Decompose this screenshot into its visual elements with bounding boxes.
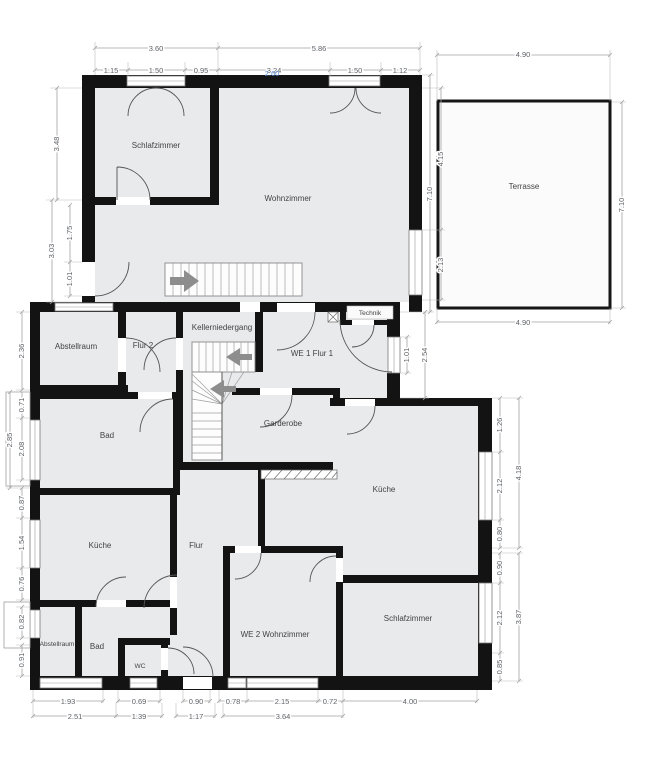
dim-terrasse-top: 4.90 <box>516 50 531 59</box>
dim-left-schlaf: 3.48 <box>52 137 61 152</box>
dim-left-bad-b: 2.08 <box>17 442 26 457</box>
dim-schlaf-total: 3.60 <box>149 44 164 53</box>
floor-plan-drawing: 3.60 1.15 1.50 0.95 5.86 3.24 1.50 1.12 … <box>0 0 648 782</box>
dim-left-e: 0.82 <box>17 615 26 630</box>
room-label-terrasse: Terrasse <box>509 182 540 191</box>
dim-right-kueche-total: 4.18 <box>514 466 523 481</box>
room-label-kueche-we1: Küche <box>373 485 396 494</box>
dimensions-right-mid: 1.01 2.54 <box>402 310 429 400</box>
dim-bottom-r2-c: 1.17 <box>189 712 204 721</box>
dim-left-bad-total: 2.85 <box>5 433 14 448</box>
dim-wohn-total: 5.86 <box>312 44 327 53</box>
dim-right-schlaf-c: 0.85 <box>495 660 504 675</box>
dim-right-mid-total: 2.54 <box>420 348 429 363</box>
dimensions-right-lower: 1.26 2.12 0.80 4.18 0.90 2.12 0.85 3.87 <box>495 396 523 683</box>
dim-left-total-a: 3.03 <box>47 244 56 259</box>
terrace <box>438 101 610 308</box>
room-label-we2-wohnzimmer: WE 2 Wohnzimmer <box>241 630 310 639</box>
dim-bottom-r1-f: 0.72 <box>323 697 338 706</box>
dim-bottom-r1-c: 0.90 <box>189 697 204 706</box>
room-label-kueche-we2: Küche <box>89 541 112 550</box>
room-label-abstellraum-we2: Abstellraum <box>40 641 75 648</box>
dim-terrasse-bottom: 4.90 <box>516 318 531 327</box>
dim-left-kueche-win: 1.54 <box>17 536 26 551</box>
dim-right-schlaf-a: 0.90 <box>495 561 504 576</box>
dim-right-upper-a: 4.15 <box>436 152 445 167</box>
dim-bottom-r1-d: 0.78 <box>226 697 241 706</box>
dim-right-schlaf-b: 2.12 <box>495 611 504 626</box>
dim-schlaf-a: 1.15 <box>104 66 119 75</box>
dim-left-f: 0.91 <box>17 653 26 668</box>
dimensions-bottom: 1.93 0.69 0.90 0.78 2.15 0.72 4.00 2.51 … <box>31 697 479 721</box>
dim-terrasse-left: 7.10 <box>425 187 434 202</box>
window-kueche-we1 <box>479 452 492 520</box>
dim-wohn-b: 1.50 <box>348 66 363 75</box>
dim-right-upper-b: 2.13 <box>436 258 445 273</box>
dim-right-schlaf-total: 3.87 <box>514 610 523 625</box>
room-label-bad-we1: Bad <box>100 431 114 440</box>
dim-right-kueche-c: 0.80 <box>495 527 504 542</box>
room-label-flur2: Flur 2 <box>133 341 154 350</box>
room-label-garderobe: Garderobe <box>264 419 303 428</box>
dim-bottom-r1-g: 4.00 <box>403 697 418 706</box>
window-schlafzimmer-we2 <box>479 583 492 643</box>
selected-dimension[interactable]: 2.60 <box>265 69 280 78</box>
dimensions-top: 3.60 1.15 1.50 0.95 5.86 3.24 1.50 1.12 … <box>93 44 422 78</box>
room-label-wohnzimmer: Wohnzimmer <box>265 194 312 203</box>
dim-left-abstell: 2.36 <box>17 344 26 359</box>
floor-plan-canvas: 3.60 1.15 1.50 0.95 5.86 3.24 1.50 1.12 … <box>0 0 648 782</box>
room-label-schlafzimmer-og: Schlafzimmer <box>132 141 181 150</box>
room-label-we1-flur1: WE 1 Flur 1 <box>291 349 334 358</box>
dim-left-c: 0.87 <box>17 496 26 511</box>
dim-schlaf-b: 1.50 <box>149 66 164 75</box>
dim-schlaf-c: 0.95 <box>194 66 209 75</box>
dim-right-mid-window: 1.01 <box>402 348 411 363</box>
dim-bottom-r1-a: 1.93 <box>61 697 76 706</box>
room-label-schlafzimmer-we2: Schlafzimmer <box>384 614 433 623</box>
dim-left-bad-a: 0.71 <box>17 398 26 413</box>
dim-bottom-r1-e: 2.15 <box>275 697 290 706</box>
room-label-flur: Flur <box>189 541 203 550</box>
room-label-bad-we2: Bad <box>90 642 104 651</box>
dim-left-d: 0.76 <box>17 577 26 592</box>
dim-bottom-r1-b: 0.69 <box>132 697 147 706</box>
dim-left-a: 1.75 <box>65 226 74 241</box>
window-wohnzimmer-right <box>409 230 422 295</box>
dim-bottom-r2-a: 2.51 <box>68 712 83 721</box>
room-label-technik: Technik <box>359 310 382 317</box>
stair-upper-floor <box>165 263 302 296</box>
dim-wohn-c: 1.12 <box>393 66 408 75</box>
dim-right-kueche-b: 2.12 <box>495 479 504 494</box>
room-label-abstellraum-we1: Abstellraum <box>55 342 98 351</box>
room-label-kellerniedergang: Kellerniedergang <box>192 323 253 332</box>
dim-right-kueche-a: 1.26 <box>495 418 504 433</box>
terrace-outline <box>438 101 610 308</box>
dim-left-b: 1.01 <box>65 272 74 287</box>
dim-terrasse-right: 7.10 <box>617 198 626 213</box>
dim-bottom-r2-d: 3.64 <box>276 712 291 721</box>
room-label-wc: WC <box>135 663 146 670</box>
dim-bottom-r2-b: 1.39 <box>132 712 147 721</box>
